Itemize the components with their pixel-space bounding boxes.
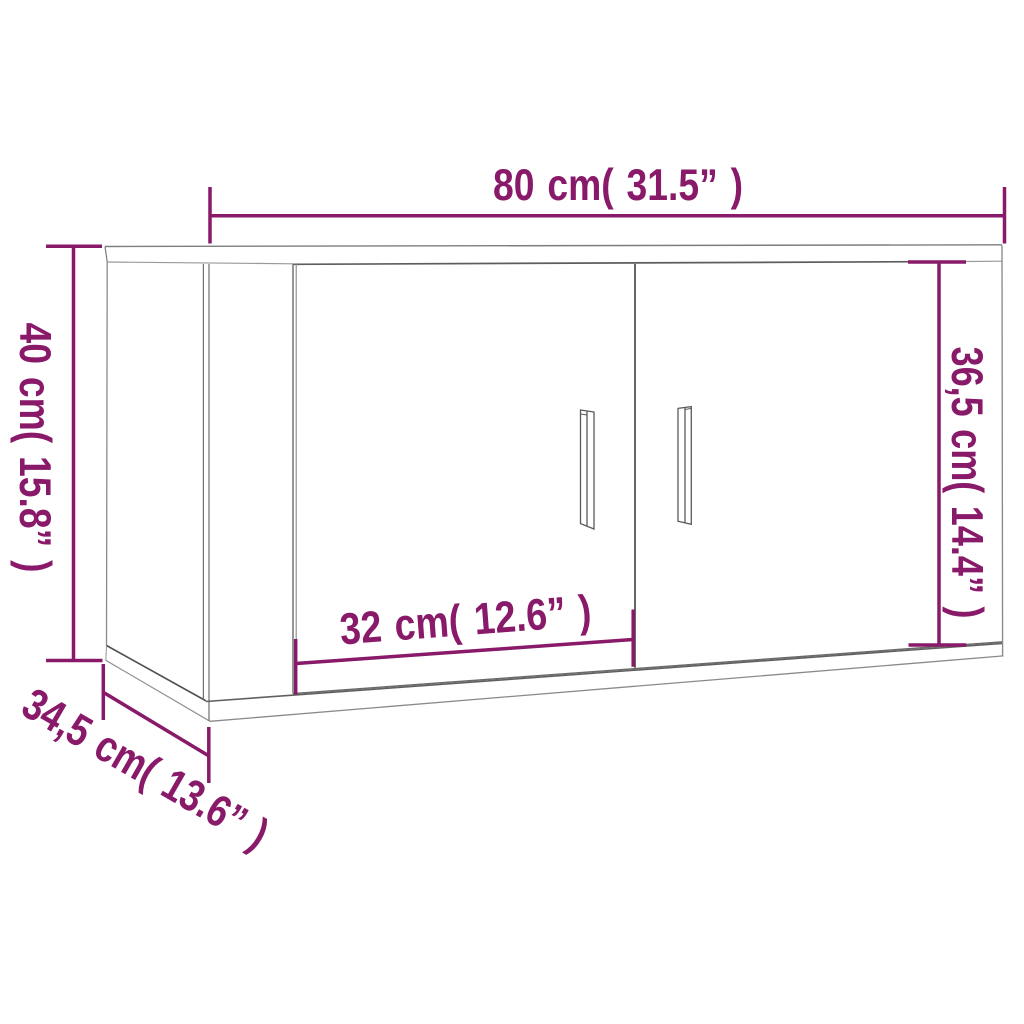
svg-text:40 cm( 15.8” ): 40 cm( 15.8” ) bbox=[10, 323, 59, 573]
svg-text:80 cm( 31.5” ): 80 cm( 31.5” ) bbox=[493, 161, 743, 210]
svg-text:34,5 cm( 13.6” ): 34,5 cm( 13.6” ) bbox=[14, 679, 277, 859]
svg-text:36,5 cm( 14.4” ): 36,5 cm( 14.4” ) bbox=[942, 347, 991, 619]
